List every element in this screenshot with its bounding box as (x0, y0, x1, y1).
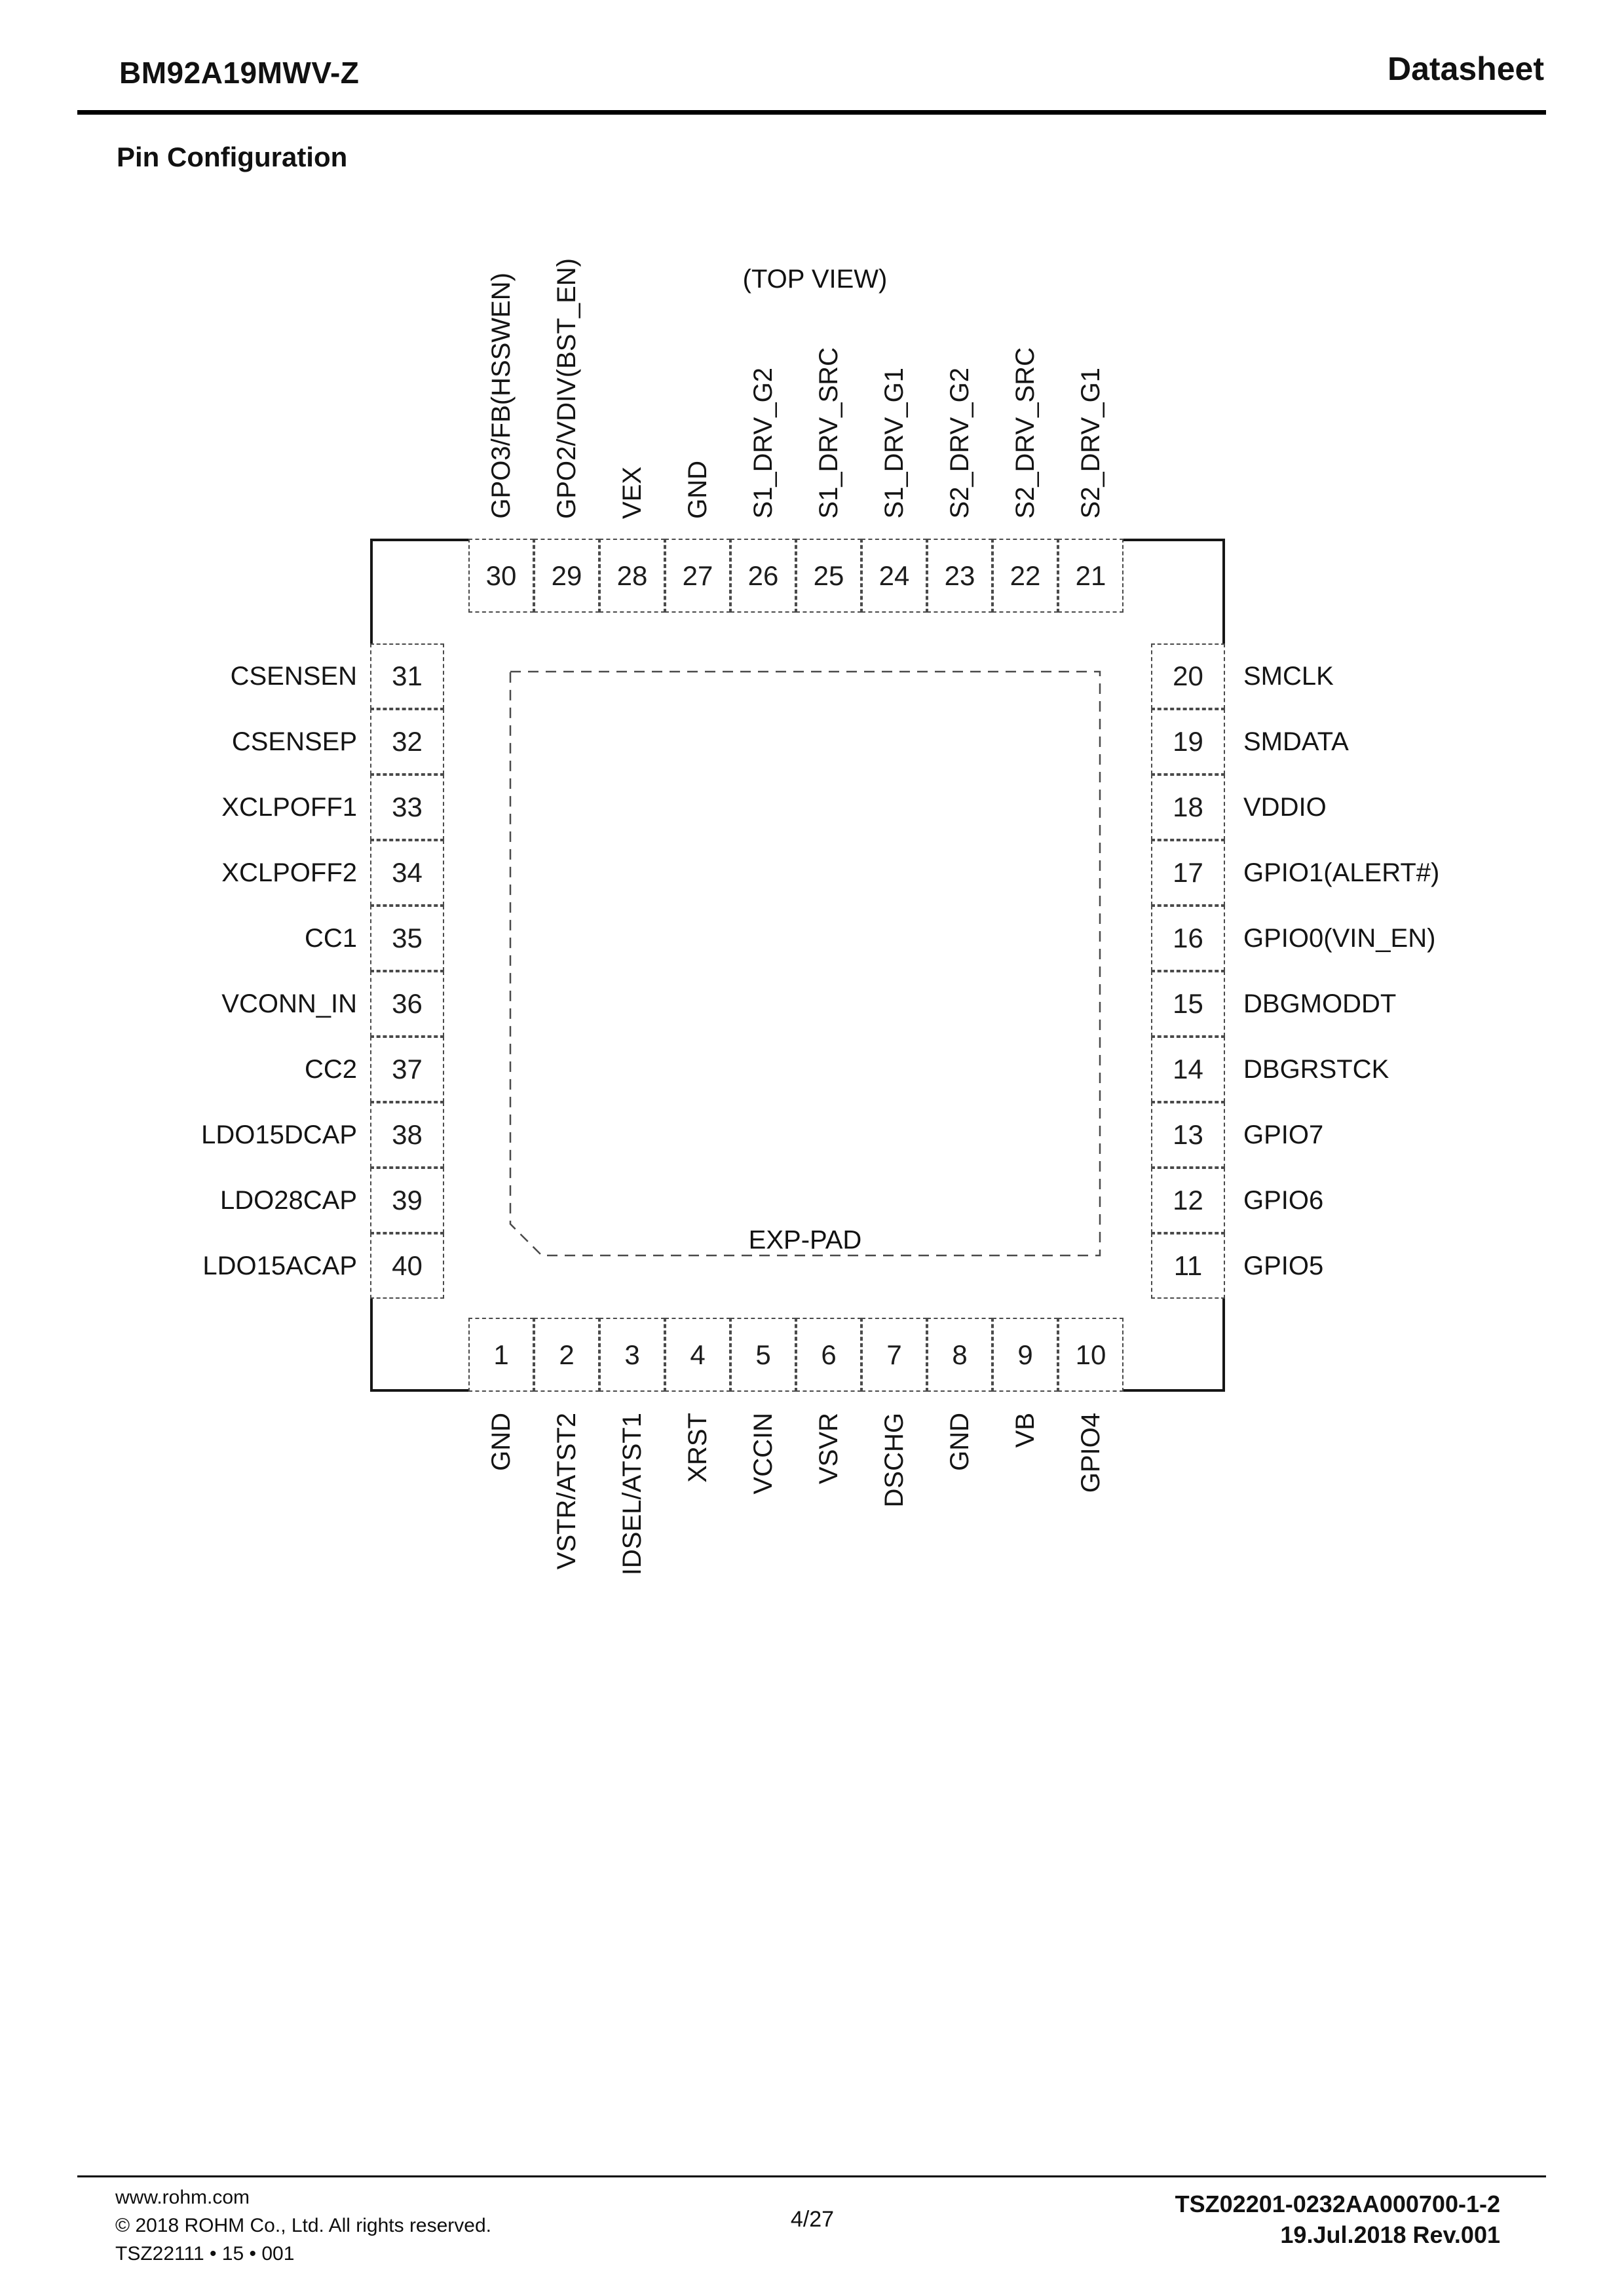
pin-number: 24 (879, 560, 910, 592)
pin-number: 27 (683, 560, 713, 592)
pin-cell-right: 11 (1151, 1233, 1225, 1299)
pin-cell-top: 22 (992, 539, 1058, 613)
pin-label-right: DBGRSTCK (1243, 1054, 1389, 1085)
pin-cell-right: 19 (1151, 709, 1225, 775)
footer-doc-number: TSZ02201-0232AA000700-1-2 (1175, 2189, 1500, 2219)
pin-cell-bottom: 9 (992, 1318, 1058, 1392)
pin-number: 1 (493, 1339, 508, 1371)
pin-label-top: S2_DRV_G1 (1076, 368, 1105, 519)
footer-right-block: TSZ02201-0232AA000700-1-2 19.Jul.2018 Re… (1175, 2189, 1500, 2250)
pin-cell-top: 27 (665, 539, 730, 613)
pin-cell-top: 26 (730, 539, 796, 613)
pin-label-left: XCLPOFF1 (221, 792, 357, 823)
pin-number: 21 (1076, 560, 1106, 592)
pin-number: 25 (814, 560, 844, 592)
pin-cell-right: 13 (1151, 1102, 1225, 1168)
pin-label-top: S1_DRV_G1 (880, 368, 909, 519)
pin-cell-left: 35 (370, 906, 444, 971)
pin-cell-right: 17 (1151, 840, 1225, 906)
pin-number: 18 (1173, 792, 1203, 823)
footer-rule (77, 2175, 1546, 2177)
pin-label-right: SMDATA (1243, 726, 1349, 757)
pin-number: 13 (1173, 1119, 1203, 1151)
pin-cell-bottom: 10 (1058, 1318, 1124, 1392)
pin-label-left: XCLPOFF2 (221, 857, 357, 889)
exp-pad-label: EXP-PAD (749, 1226, 862, 1255)
pin-label-left: VCONN_IN (221, 988, 357, 1020)
pin-label-left: LDO15ACAP (202, 1250, 357, 1282)
pin-label-bottom: VSVR (814, 1413, 843, 1484)
pin-cell-left: 32 (370, 709, 444, 775)
pin-label-left: CC1 (305, 923, 357, 954)
pin-number: 30 (486, 560, 517, 592)
pin-number: 29 (552, 560, 582, 592)
datasheet-page: BM92A19MWV-Z Datasheet Pin Configuration… (0, 0, 1624, 2296)
pin-cell-right: 14 (1151, 1037, 1225, 1102)
pin-number: 38 (392, 1119, 423, 1151)
pin-number: 26 (748, 560, 779, 592)
pin-cell-right: 12 (1151, 1168, 1225, 1233)
pin-cell-right: 15 (1151, 971, 1225, 1037)
pin-cell-left: 31 (370, 643, 444, 709)
pin-label-top: S2_DRV_G2 (945, 368, 974, 519)
footer-left-block: www.rohm.com © 2018 ROHM Co., Ltd. All r… (115, 2183, 491, 2268)
pin-label-bottom: VSTR/ATST2 (552, 1413, 581, 1569)
pin-label-bottom: IDSEL/ATST1 (618, 1413, 647, 1575)
pin-label-bottom: VB (1011, 1413, 1040, 1447)
pin-cell-left: 36 (370, 971, 444, 1037)
pin-label-right: SMCLK (1243, 660, 1334, 692)
pin-number: 19 (1173, 726, 1203, 757)
pin-label-top: S1_DRV_SRC (814, 347, 843, 519)
pin-number: 6 (821, 1339, 836, 1371)
pin-label-left: CSENSEP (232, 726, 357, 757)
pin-number: 11 (1174, 1250, 1203, 1282)
pin-cell-top: 25 (796, 539, 861, 613)
pin-cell-left: 40 (370, 1233, 444, 1299)
pin-label-bottom: DSCHG (880, 1413, 909, 1507)
pin-number: 8 (952, 1339, 967, 1371)
footer-page-indicator: 4/27 (791, 2207, 834, 2232)
pin-label-top: GND (683, 461, 712, 519)
pin-number: 32 (392, 726, 423, 757)
pin-cell-bottom: 6 (796, 1318, 861, 1392)
pin-number: 9 (1017, 1339, 1032, 1371)
pin-label-bottom: GND (945, 1413, 974, 1471)
pin-label-right: VDDIO (1243, 792, 1327, 823)
pin-number: 34 (392, 857, 423, 889)
pin-label-left: CSENSEN (231, 660, 357, 692)
pin-number: 2 (559, 1339, 574, 1371)
pin-cell-left: 33 (370, 775, 444, 840)
pin-number: 39 (392, 1185, 423, 1216)
pin-number: 40 (392, 1250, 423, 1282)
pin-number: 20 (1173, 660, 1203, 692)
pin-cell-bottom: 3 (599, 1318, 665, 1392)
pin-cell-right: 20 (1151, 643, 1225, 709)
pin-cell-top: 21 (1058, 539, 1124, 613)
pin-number: 37 (392, 1054, 423, 1085)
pin-number: 15 (1173, 988, 1203, 1020)
pin-cell-bottom: 4 (665, 1318, 730, 1392)
pin-cell-bottom: 7 (861, 1318, 927, 1392)
pin-number: 33 (392, 792, 423, 823)
pin-cell-bottom: 2 (534, 1318, 599, 1392)
pin-number: 28 (617, 560, 648, 592)
pin-cell-top: 29 (534, 539, 599, 613)
pin-label-bottom: GPIO4 (1076, 1413, 1105, 1493)
pin-cell-left: 38 (370, 1102, 444, 1168)
pin-label-right: GPIO0(VIN_EN) (1243, 923, 1435, 954)
pin-label-left: LDO15DCAP (201, 1119, 357, 1151)
pin-label-bottom: XRST (683, 1413, 712, 1483)
pin-number: 23 (945, 560, 975, 592)
pin-label-right: GPIO7 (1243, 1119, 1323, 1151)
pin-cell-left: 37 (370, 1037, 444, 1102)
pin-number: 31 (392, 660, 423, 692)
pin-number: 17 (1173, 857, 1203, 889)
pin-number: 5 (755, 1339, 770, 1371)
pin-cell-left: 34 (370, 840, 444, 906)
pin-number: 10 (1076, 1339, 1106, 1371)
pin-number: 22 (1010, 560, 1041, 592)
pin-label-top: S2_DRV_SRC (1011, 347, 1040, 519)
pin-cell-left: 39 (370, 1168, 444, 1233)
pin-number: 4 (690, 1339, 705, 1371)
pin-number: 36 (392, 988, 423, 1020)
footer-copyright: © 2018 ROHM Co., Ltd. All rights reserve… (115, 2211, 491, 2240)
pin-cell-top: 28 (599, 539, 665, 613)
pin-cell-top: 24 (861, 539, 927, 613)
pin-cell-right: 16 (1151, 906, 1225, 971)
pin-number: 12 (1173, 1185, 1203, 1216)
pin-number: 14 (1173, 1054, 1203, 1085)
pin-number: 7 (886, 1339, 901, 1371)
pin-number: 3 (624, 1339, 639, 1371)
pin-cell-bottom: 5 (730, 1318, 796, 1392)
pin-number: 35 (392, 923, 423, 954)
pin-label-top: VEX (618, 467, 647, 519)
pin-cell-bottom: 1 (468, 1318, 534, 1392)
footer-website: www.rohm.com (115, 2183, 491, 2211)
pin-label-right: GPIO5 (1243, 1250, 1323, 1282)
pin-label-bottom: GND (487, 1413, 516, 1471)
pin-label-right: GPIO1(ALERT#) (1243, 857, 1439, 889)
footer-doc-control: TSZ22111 • 15 • 001 (115, 2240, 491, 2268)
pin-cell-top: 30 (468, 539, 534, 613)
pin-label-right: GPIO6 (1243, 1185, 1323, 1216)
pin-label-top: S1_DRV_G2 (749, 368, 778, 519)
pin-label-left: LDO28CAP (220, 1185, 357, 1216)
pin-number: 16 (1173, 923, 1203, 954)
pin-label-right: DBGMODDT (1243, 988, 1396, 1020)
pin-cell-right: 18 (1151, 775, 1225, 840)
footer-revision: 19.Jul.2018 Rev.001 (1175, 2219, 1500, 2250)
pin-label-top: GPO3/FB(HSSWEN) (487, 273, 516, 519)
pin-cell-bottom: 8 (927, 1318, 992, 1392)
pin-label-left: CC2 (305, 1054, 357, 1085)
pin-label-top: GPO2/VDIV(BST_EN) (552, 258, 581, 519)
pin-cell-top: 23 (927, 539, 992, 613)
pin-label-bottom: VCCIN (749, 1413, 778, 1494)
